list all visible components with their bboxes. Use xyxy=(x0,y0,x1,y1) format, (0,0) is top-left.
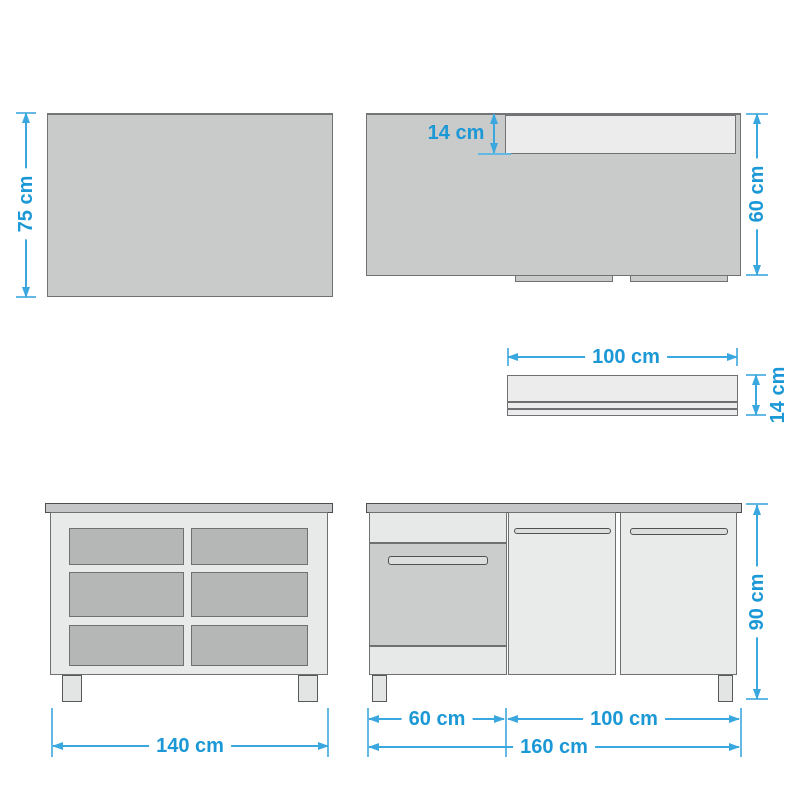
sideboard-leg-left xyxy=(62,675,82,702)
furniture-dimension-diagram: 75 cm 14 cm 60 cm 100 cm 14 cm xyxy=(0,0,800,800)
base-unit-drawer-front xyxy=(369,512,507,543)
dimension-label: 90 cm xyxy=(746,567,768,638)
door-middle xyxy=(508,512,616,675)
compartment xyxy=(191,528,308,565)
dimension-label: 60 cm xyxy=(746,159,768,230)
appliance-handle xyxy=(388,556,488,565)
base-unit-plinth-front xyxy=(369,646,507,675)
compartment xyxy=(69,625,184,666)
dimension-label: 14 cm xyxy=(767,360,789,431)
dimension-label: 160 cm xyxy=(513,736,595,758)
dimension-label: 14 cm xyxy=(421,122,492,144)
compartment xyxy=(69,528,184,565)
door-right xyxy=(620,512,737,675)
dimension-label: 100 cm xyxy=(583,708,665,730)
dimension-tick xyxy=(478,153,511,155)
compartment xyxy=(191,572,308,617)
door-middle-handle xyxy=(514,528,611,534)
dimension-line xyxy=(755,375,757,415)
dimension-line xyxy=(493,114,495,153)
extension-line xyxy=(740,708,742,757)
shelf-edge-line xyxy=(508,401,737,403)
dimension-label: 100 cm xyxy=(585,346,667,368)
dimension-label: 140 cm xyxy=(149,735,231,757)
dimension-label: 75 cm xyxy=(15,169,37,240)
base-unit-leg-right xyxy=(718,675,733,702)
compartment xyxy=(69,572,184,617)
base-unit-leg-left xyxy=(372,675,387,702)
compartment xyxy=(191,625,308,666)
sideboard-leg-right xyxy=(298,675,318,702)
wall-panel-shelf-inset xyxy=(505,115,736,154)
door-right-handle xyxy=(630,528,728,535)
dimension-label: 60 cm xyxy=(402,708,473,730)
wall-shelf xyxy=(507,375,738,416)
wall-panel-left xyxy=(47,113,333,297)
shelf-edge-line xyxy=(508,408,737,410)
